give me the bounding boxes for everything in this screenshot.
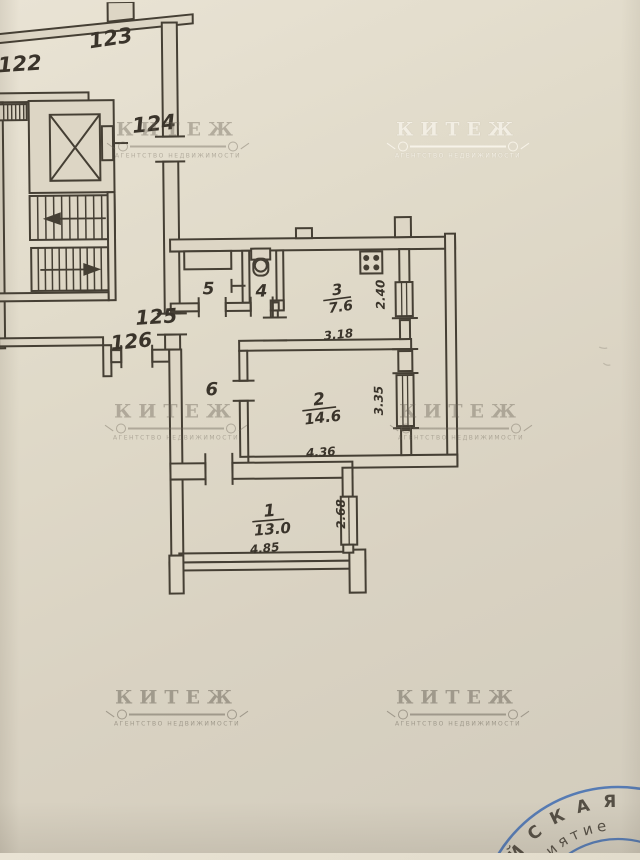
floor-plan-svg: 122 123 124 125 126 5 4 6 3 7.6 2 14.6 [0,0,640,856]
dim-room1-depth: 2.68 [334,499,348,529]
toilet-icon [251,249,270,276]
balcony-door [398,351,412,371]
door-room1 [205,453,232,485]
elevator-door [102,126,113,160]
dim-kitchen-width: 3.18 [323,326,354,343]
room2-window [396,375,414,426]
elevator [29,100,129,193]
room5-number: 5 [202,279,214,299]
paper-smudges [599,347,610,365]
room1-label: 1 13.0 [251,500,292,540]
door-room2 [233,381,255,401]
room2-label: 2 14.6 [300,388,342,429]
floor-plan: 122 123 124 125 126 5 4 6 3 7.6 2 14.6 [0,0,640,856]
vent-stub [395,217,411,237]
dim-kitchen-depth: 2.40 [373,280,387,310]
door-124 [155,136,185,161]
chimney-stub [296,228,312,238]
dim-room2-width: 4.36 [305,444,336,460]
unit-label-124: 124 [131,110,177,138]
dim-room2-depth: 3.35 [372,386,386,416]
room6-number: 6 [205,379,218,400]
dim-room1-width: 4.85 [248,540,280,557]
kitchen-window [395,282,412,316]
unit-label-122: 122 [0,51,42,78]
room1-area: 13.0 [253,519,291,540]
vent-shaft-hatch [0,104,27,120]
room3-label: 3 7.6 [321,279,354,318]
pier-left [169,555,183,593]
room4-number: 4 [254,282,267,302]
paper-background: 122 123 124 125 126 5 4 6 3 7.6 2 14.6 [0,0,640,853]
apartment-outer-walls [166,217,459,595]
pier-right [349,550,365,593]
unit-label-125: 125 [135,303,178,330]
room1-number: 1 [263,501,276,522]
door-kitchen [263,317,287,340]
room3-number: 3 [331,280,344,299]
room3-area: 7.6 [327,298,354,317]
unit-label-123: 123 [87,23,134,53]
stove-icon [360,251,382,273]
bath-icon [184,251,231,269]
stairs [0,192,116,301]
door-room5 [199,297,226,317]
room2-number: 2 [312,389,326,410]
room2-area: 14.6 [303,406,342,428]
scanned-floor-plan-page: { "units": { "u122": "122", "u123": "123… [0,0,640,853]
loggia-outer-wall [445,234,457,466]
unit-label-126: 126 [109,327,153,355]
